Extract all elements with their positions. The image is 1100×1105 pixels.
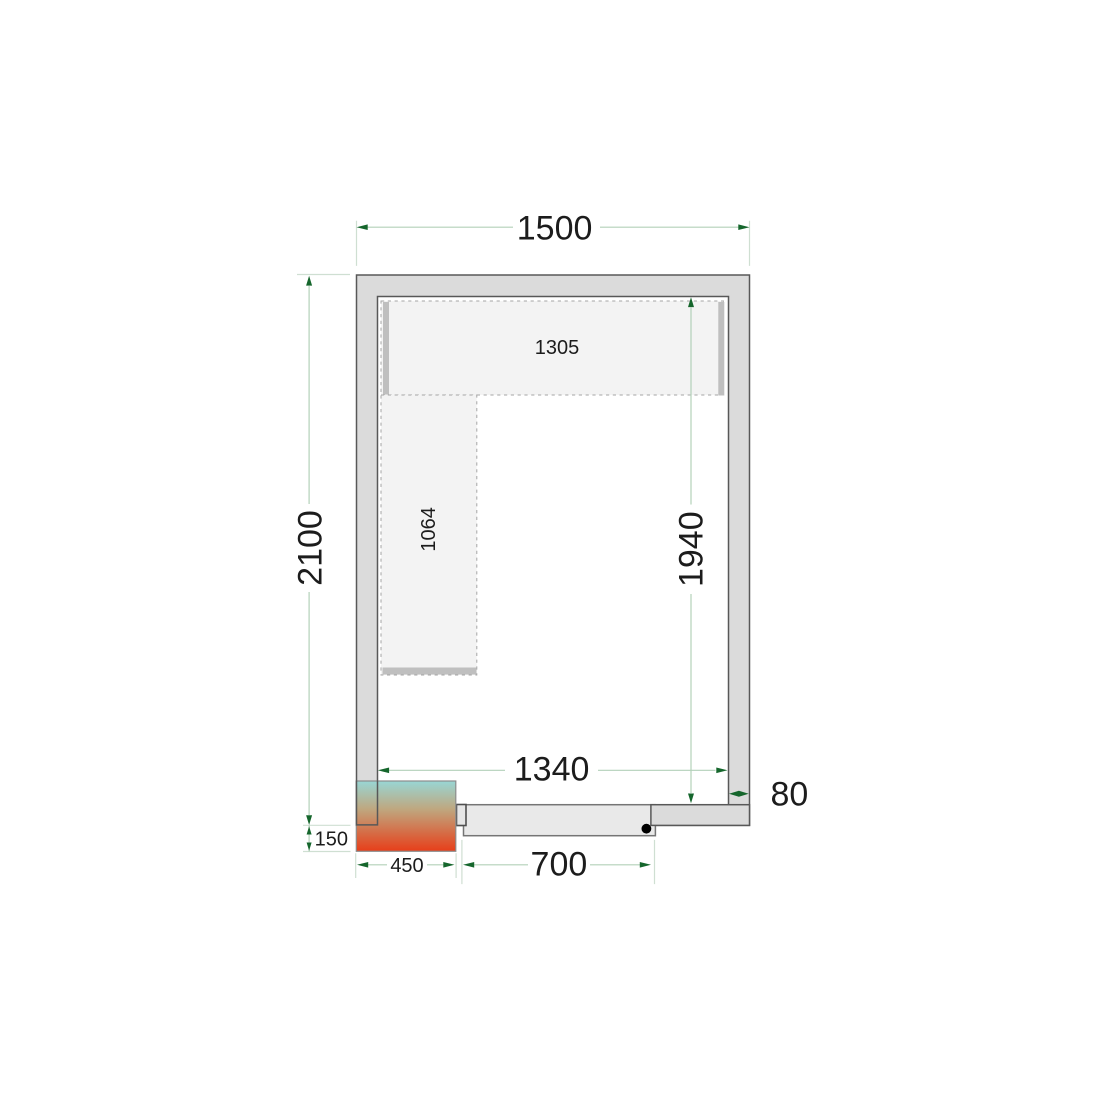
svg-text:450: 450 xyxy=(390,855,423,877)
svg-text:1064: 1064 xyxy=(418,507,440,552)
svg-text:1940: 1940 xyxy=(672,511,710,587)
svg-text:150: 150 xyxy=(315,829,348,851)
svg-text:1340: 1340 xyxy=(514,750,590,788)
svg-text:700: 700 xyxy=(531,846,588,884)
svg-text:1305: 1305 xyxy=(535,337,580,359)
svg-text:80: 80 xyxy=(771,776,809,814)
svg-text:1500: 1500 xyxy=(517,209,593,247)
svg-text:2100: 2100 xyxy=(292,510,330,586)
